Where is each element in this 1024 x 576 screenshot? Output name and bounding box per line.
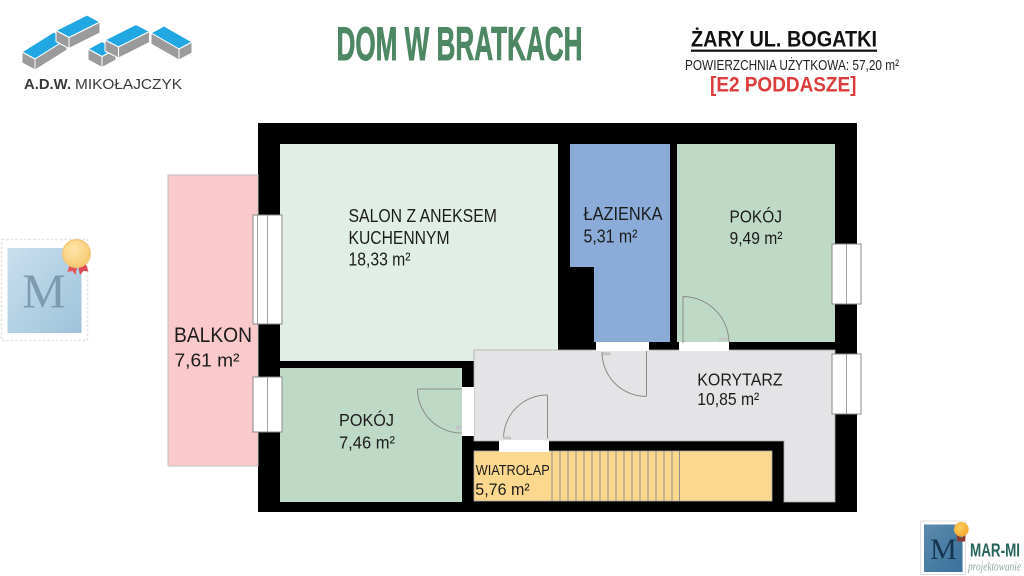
svg-text:POWIERZCHNIA UŻYTKOWA: 57,20 m: POWIERZCHNIA UŻYTKOWA: 57,20 m²: [685, 56, 899, 74]
svg-text:M: M: [930, 533, 957, 566]
svg-text:5,31 m²: 5,31 m²: [584, 227, 638, 247]
svg-text:BALKON: BALKON: [174, 324, 252, 347]
svg-text:A.D.W.: A.D.W.: [24, 77, 71, 93]
svg-text:KUCHENNYM: KUCHENNYM: [349, 227, 450, 248]
svg-text:SALON Z ANEKSEM: SALON Z ANEKSEM: [349, 205, 497, 226]
svg-text:KORYTARZ: KORYTARZ: [697, 370, 782, 390]
svg-text:M: M: [22, 264, 66, 319]
svg-text:7,46 m²: 7,46 m²: [339, 433, 395, 453]
svg-text:5,76 m²: 5,76 m²: [475, 481, 530, 499]
svg-text:POKÓJ: POKÓJ: [339, 409, 394, 430]
svg-text:MAR-MI: MAR-MI: [970, 541, 1020, 561]
svg-text:POKÓJ: POKÓJ: [730, 206, 783, 227]
svg-text:WIATROŁAP: WIATROŁAP: [476, 462, 550, 479]
svg-text:MIKOŁAJCZYK: MIKOŁAJCZYK: [75, 77, 182, 93]
svg-text:18,33 m²: 18,33 m²: [349, 250, 411, 270]
svg-text:9,49 m²: 9,49 m²: [730, 228, 783, 248]
svg-text:projektowanie: projektowanie: [967, 559, 1021, 574]
svg-text:DOM W BRATKACH: DOM W BRATKACH: [337, 18, 583, 71]
svg-text:7,61 m²: 7,61 m²: [175, 349, 240, 370]
svg-text:[E2 PODDASZE]: [E2 PODDASZE]: [710, 73, 857, 97]
svg-text:ŻARY UL. BOGATKI: ŻARY UL. BOGATKI: [691, 27, 877, 52]
svg-text:10,85 m²: 10,85 m²: [697, 389, 759, 409]
svg-text:ŁAZIENKA: ŁAZIENKA: [584, 203, 664, 224]
